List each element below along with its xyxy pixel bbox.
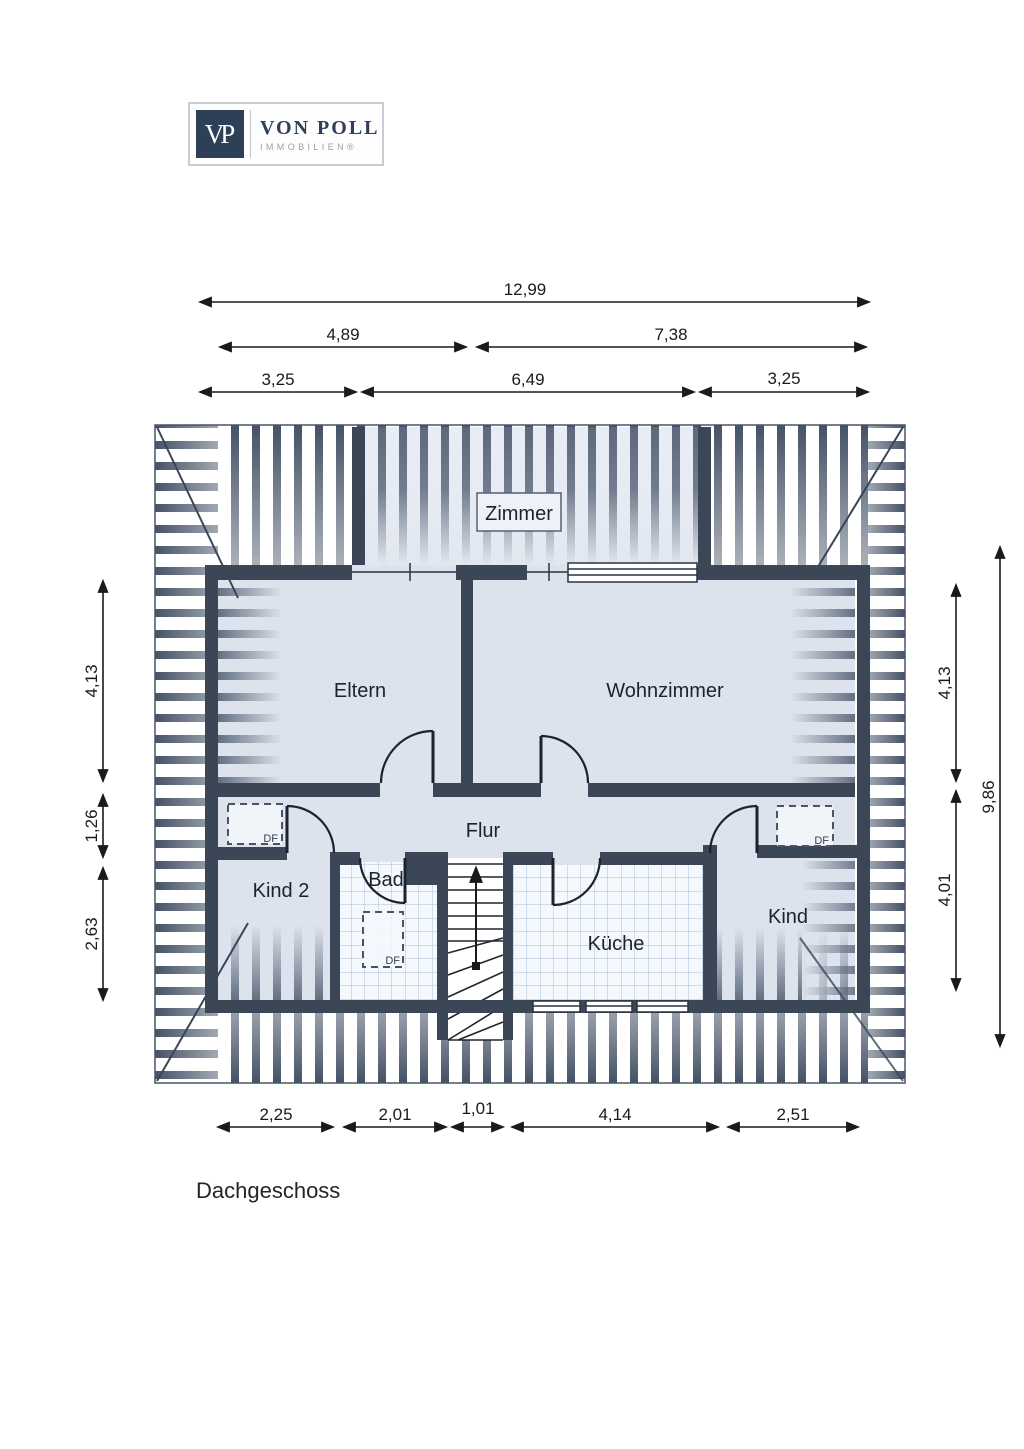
dimension: 2,63 [82,868,103,1000]
dim-label: 2,01 [378,1105,411,1124]
dim-label: 12,99 [504,280,547,299]
dim-label: 1,26 [82,809,101,842]
dimension: 9,86 [979,547,1000,1046]
dim-label: 4,13 [935,666,954,699]
dim-label: 2,51 [776,1105,809,1124]
roof-window-left-label: DF [263,833,278,845]
window-south-1 [533,1001,580,1012]
window-south-3 [637,1001,688,1012]
zimmer-wall-right [698,427,711,568]
room-label-kind2: Kind 2 [253,880,310,902]
dim-label: 4,14 [598,1105,631,1124]
dim-label: 7,38 [654,325,687,344]
roof-window-right: DF [777,806,833,847]
dimension: 4,14 [512,1105,718,1127]
room-label-kind: Kind [768,906,808,928]
dim-label: 6,49 [511,370,544,389]
dimension: 4,13 [82,581,103,781]
dimension: 7,38 [477,325,866,347]
room-label-kueche: Küche [588,933,645,955]
window-south-2 [586,1001,632,1012]
dim-label: 4,01 [935,873,954,906]
page: VP VON POLL IMMOBILIEN® Dachgeschoss [0,0,1024,1449]
dimension: 2,51 [728,1105,858,1127]
room-label-zimmer: Zimmer [485,503,553,525]
dim-label: 4,13 [82,664,101,697]
dim-label: 3,25 [261,370,294,389]
dimensions-top: 12,99 4,89 7,38 3,25 6,49 3,25 [200,280,869,392]
floor-plan-drawing: DF DF DF Zimmer Eltern Wohnzimmer Flur K… [0,0,1024,1449]
window-north [568,563,697,582]
roof-window-bad: DF [363,912,403,967]
dimension: 3,25 [700,369,868,392]
dimensions-bottom: 2,25 2,01 1,01 4,14 2,51 [218,1099,858,1127]
dimensions-right: 4,13 4,01 9,86 [935,547,1000,1046]
room-label-bad: Bad [368,869,404,891]
dim-label: 2,63 [82,917,101,950]
roof-window-right-label: DF [814,835,829,847]
room-label-flur: Flur [466,820,501,842]
dimension: 1,26 [82,795,103,857]
dimension: 12,99 [200,280,869,302]
dimension: 3,25 [200,370,356,392]
roof-window-left: DF [228,804,282,845]
dim-label: 9,86 [979,780,998,813]
dimension: 1,01 [452,1099,503,1127]
dimensions-left: 4,13 1,26 2,63 [82,581,103,1000]
dimension: 6,49 [362,370,694,392]
dim-label: 3,25 [767,369,800,388]
dimension: 4,01 [935,791,956,990]
dimension: 2,01 [344,1105,446,1127]
dimension: 4,13 [935,585,956,781]
zimmer-wall-left [352,427,365,568]
dim-label: 4,89 [326,325,359,344]
room-label-eltern: Eltern [334,680,386,702]
roof-window-bad-label: DF [385,955,400,967]
dim-label: 1,01 [461,1099,494,1118]
dimension: 4,89 [220,325,466,347]
dimension: 2,25 [218,1105,333,1127]
room-label-wohnzimmer: Wohnzimmer [606,680,724,702]
dim-label: 2,25 [259,1105,292,1124]
